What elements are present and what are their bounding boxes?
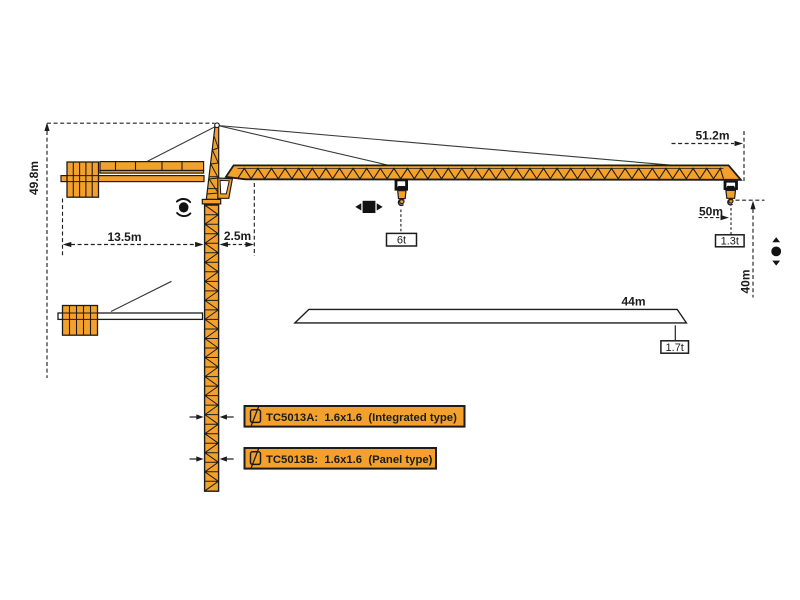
svg-text:44m: 44m [621,295,645,309]
svg-text:TC5013A: 1.6x1.6 (Integrated: TC5013A: 1.6x1.6 (Integrated type) [266,412,457,424]
svg-text:2.5m: 2.5m [224,229,251,243]
svg-text:49.8m: 49.8m [27,161,41,195]
svg-text:6t: 6t [397,235,406,247]
svg-text:13.5m: 13.5m [107,230,141,244]
svg-text:50m: 50m [699,204,723,218]
svg-text:40m: 40m [739,269,753,293]
svg-text:51.2m: 51.2m [695,129,729,143]
svg-text:1.3t: 1.3t [721,235,739,247]
svg-text:1.7t: 1.7t [666,342,684,354]
svg-text:TC5013B: 1.6x1.6 (Panel type: TC5013B: 1.6x1.6 (Panel type) [266,454,433,466]
